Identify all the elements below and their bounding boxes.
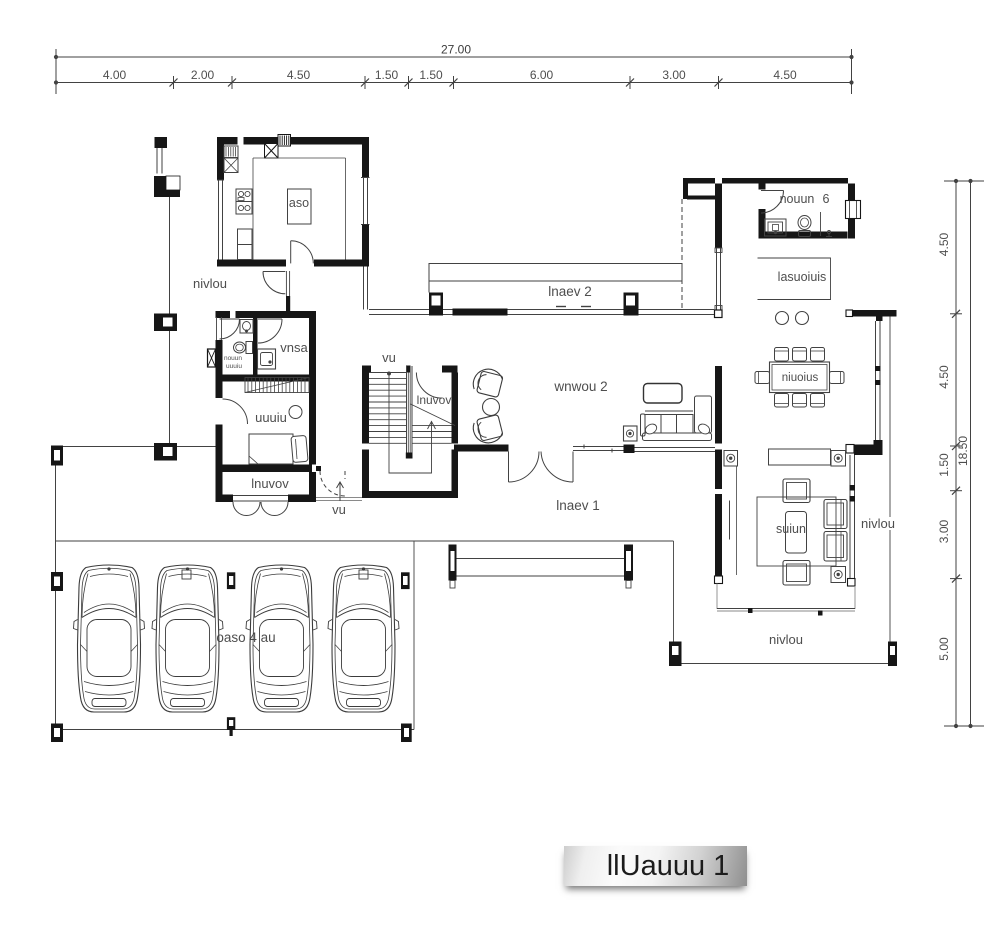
svg-text:6.00: 6.00 — [530, 68, 554, 82]
svg-text:4.50: 4.50 — [937, 365, 951, 389]
svg-text:4.50: 4.50 — [773, 68, 797, 82]
svg-text:lnaev 1: lnaev 1 — [556, 498, 600, 513]
svg-text:1.50: 1.50 — [937, 453, 951, 477]
svg-text:vu: vu — [332, 502, 346, 517]
svg-text:vnsa: vnsa — [280, 340, 308, 355]
svg-text:3.00: 3.00 — [937, 519, 951, 543]
svg-text:nivlou: nivlou — [193, 276, 227, 291]
svg-text:lasuoiuis: lasuoiuis — [778, 270, 827, 284]
svg-text:1.50: 1.50 — [419, 68, 443, 82]
svg-text:lnaev 2: lnaev 2 — [548, 284, 592, 299]
svg-text:lnuvov: lnuvov — [417, 393, 452, 407]
svg-text:lnuvov: lnuvov — [251, 476, 289, 491]
svg-text:nouun: nouun — [780, 192, 815, 206]
svg-text:vu: vu — [382, 350, 396, 365]
svg-text:4.50: 4.50 — [937, 232, 951, 256]
svg-text:suiun: suiun — [776, 522, 806, 536]
svg-text:27.00: 27.00 — [441, 43, 471, 57]
svg-text:uuuiu: uuuiu — [255, 410, 287, 425]
svg-text:3.00: 3.00 — [662, 68, 686, 82]
svg-text:nivlou: nivlou — [769, 632, 803, 647]
svg-text:aso: aso — [289, 196, 309, 210]
svg-text:nivlou: nivlou — [861, 516, 895, 531]
svg-text:1.50: 1.50 — [375, 68, 399, 82]
svg-text:oaso 4 au: oaso 4 au — [216, 630, 275, 645]
svg-text:4.00: 4.00 — [103, 68, 127, 82]
svg-text:5.00: 5.00 — [937, 637, 951, 661]
svg-text:wnwou 2: wnwou 2 — [553, 379, 607, 394]
svg-text:6: 6 — [823, 192, 830, 206]
svg-text:uuuiu: uuuiu — [226, 363, 242, 370]
svg-text:4.50: 4.50 — [287, 68, 311, 82]
svg-text:niuoius: niuoius — [782, 372, 819, 384]
svg-text:18.50: 18.50 — [956, 436, 970, 466]
svg-text:2.00: 2.00 — [191, 68, 215, 82]
svg-text:nouun: nouun — [224, 355, 242, 362]
